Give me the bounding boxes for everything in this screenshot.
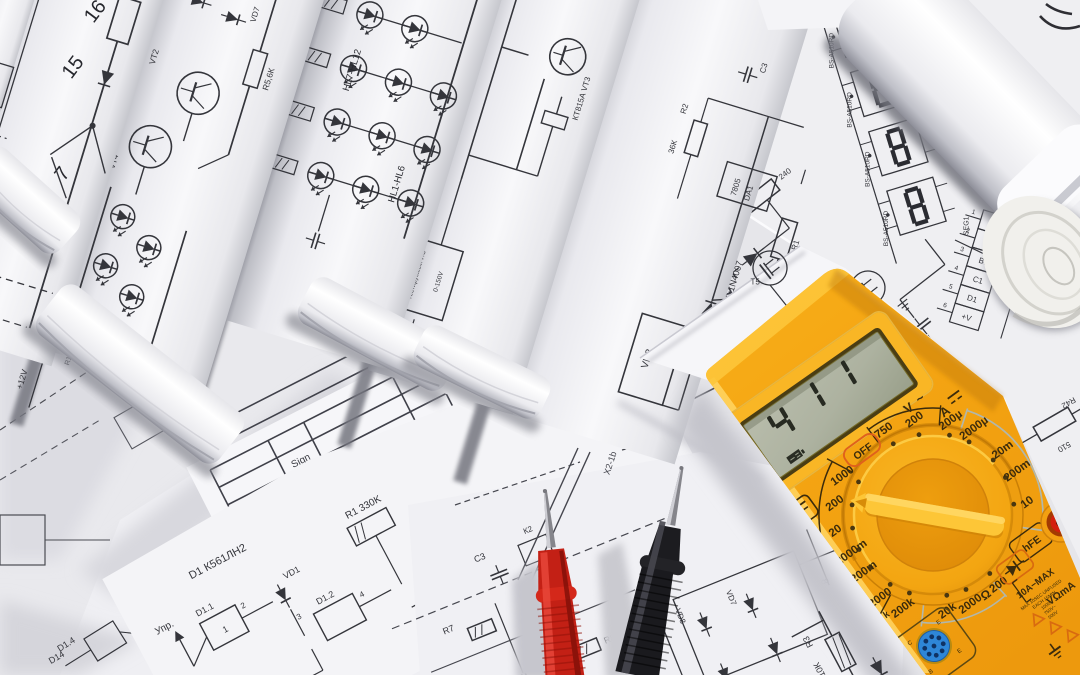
svg-text:Т5: Т5	[750, 278, 760, 287]
